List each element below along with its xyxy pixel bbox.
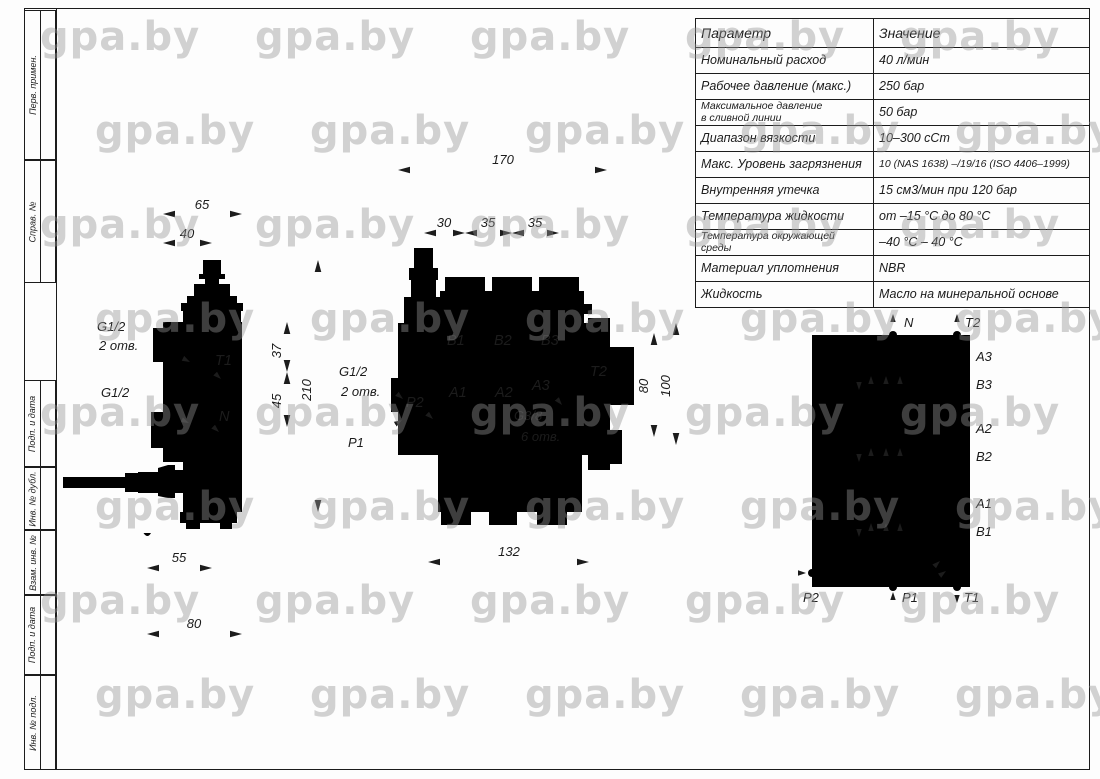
port-label-a3: A3 [531, 378, 550, 394]
sch-port-t2: T2 [965, 315, 981, 330]
param-value: 10 (NAS 1638) –/19/16 (ISO 4406–1999) [879, 159, 1084, 170]
stamp-podp-data-2: Подп. и дата [24, 595, 56, 675]
param-name-line2: среды [701, 243, 868, 254]
thread-qty-label: 2 отв. [98, 338, 138, 353]
dim-40: 40 [180, 226, 195, 241]
port-label-a1: A1 [448, 385, 467, 401]
front-view: 170 30 35 35 80 100 132 G1/2 2 отв. P1 [336, 152, 682, 568]
sch-port-n: N [904, 315, 914, 330]
table-row: Максимальное давлениев сливной линии 50 … [696, 99, 1089, 125]
stamp-sprav-no: Справ. № [24, 160, 56, 283]
table-row: Жидкость Масло на минеральной основе [696, 281, 1089, 307]
stamp-inv-dubl: Инв. № дубл. [24, 467, 56, 530]
dim-30: 30 [437, 215, 452, 230]
stamp-podp-data-1: Подп. и дата [24, 380, 56, 467]
param-name: Материал уплотнения [701, 262, 868, 275]
port-label-n: N [219, 409, 230, 425]
port-label-p1: P1 [348, 435, 364, 450]
param-name: Рабочее давление (макс.) [701, 80, 868, 93]
dim-80-front: 80 [636, 378, 651, 393]
dim-132: 132 [498, 544, 520, 559]
sch-port-a1: A1 [975, 496, 992, 511]
sch-port-b3: B3 [976, 377, 993, 392]
table-row: Температура окружающейсреды –40 °С – 40 … [696, 229, 1089, 255]
param-value: 15 см3/мин при 120 бар [879, 184, 1084, 197]
thread-qty6-label: 6 отв. [521, 429, 560, 444]
thread-label-g38: G3/8 [514, 408, 543, 423]
sch-port-p1: P1 [902, 590, 918, 605]
side-view: 65 40 37 45 210 55 80 G1/2 2 отв. [63, 197, 324, 640]
sch-port-t1: T1 [964, 590, 979, 605]
dim-37: 37 [269, 343, 284, 358]
param-name: Максимальное давление [701, 101, 868, 112]
param-value: –40 °С – 40 °С [879, 236, 1084, 249]
param-value: 50 бар [879, 106, 1084, 119]
param-name: Внутренняя утечка [701, 184, 868, 197]
port-label-t1: T1 [215, 353, 232, 369]
thread-qty2-label: 2 отв. [340, 384, 380, 399]
port-label-b1: B1 [447, 333, 465, 349]
drawing-sheet: Перв. примен. Справ. № Подп. и дата Инв.… [0, 0, 1100, 779]
stamp-inv-podl: Инв. № подл. [24, 675, 56, 770]
table-header-row: Параметр Значение [696, 19, 1089, 47]
param-value: Масло на минеральной основе [879, 288, 1084, 301]
stamp-label: Взам. инв. № [28, 535, 38, 591]
sch-port-b1: B1 [976, 524, 992, 539]
stamp-label: Подп. и дата [28, 607, 38, 663]
stamp-label: Справ. № [28, 201, 38, 242]
param-value: NBR [879, 262, 1084, 275]
thread-label-g12-top: G1/2 [97, 319, 126, 334]
param-name: Макс. Уровень загрязнения [701, 158, 868, 171]
dim-45: 45 [269, 393, 284, 408]
port-label-t2: T2 [590, 364, 607, 380]
stamp-label: Инв. № дубл. [28, 471, 38, 526]
stamp-label: Подп. и дата [28, 395, 38, 451]
stamp-vzam-inv: Взам. инв. № [24, 530, 56, 595]
hydraulic-schematic: N T2 A3 B3 A2 B2 A1 B1 P2 P1 T1 [790, 314, 993, 605]
table-row: Температура жидкости от –15 °С до 80 °С [696, 203, 1089, 229]
sch-port-a3: A3 [975, 349, 993, 364]
param-name: Диапазон вязкости [701, 132, 868, 145]
stamp-perv-primen: Перв. примен. [24, 10, 56, 160]
dim-65: 65 [195, 197, 210, 212]
thread-label-g12: G1/2 [339, 364, 368, 379]
param-name: Температура окружающей [701, 231, 868, 242]
stamp-label: Инв. № подл. [28, 695, 38, 751]
table-row: Рабочее давление (макс.) 250 бар [696, 73, 1089, 99]
port-label-b2: B2 [494, 333, 512, 349]
table-row: Внутренняя утечка 15 см3/мин при 120 бар [696, 177, 1089, 203]
port-label-p2: P2 [406, 395, 424, 411]
param-name-line2: в сливной линии [701, 113, 868, 124]
stamp-label: Перв. примен. [28, 55, 38, 115]
param-value: 250 бар [879, 80, 1084, 93]
sch-port-p2: P2 [803, 590, 820, 605]
parameters-table: Параметр Значение Номинальный расход 40 … [695, 18, 1090, 308]
param-value: от –15 °С до 80 °С [879, 210, 1084, 223]
col-param-header: Параметр [701, 26, 868, 41]
table-row: Материал уплотнения NBR [696, 255, 1089, 281]
table-row: Номинальный расход 40 л/мин [696, 47, 1089, 73]
param-name: Жидкость [701, 288, 868, 301]
param-name: Номинальный расход [701, 54, 868, 67]
dim-170: 170 [492, 152, 514, 167]
dim-35a: 35 [481, 215, 496, 230]
dim-35b: 35 [528, 215, 543, 230]
dim-80: 80 [187, 616, 202, 631]
table-row: Макс. Уровень загрязнения 10 (NAS 1638) … [696, 151, 1089, 177]
col-value-header: Значение [879, 26, 1084, 41]
dim-55: 55 [172, 550, 187, 565]
port-label-a2: A2 [494, 385, 513, 401]
dim-100: 100 [658, 374, 673, 396]
sch-port-b2: B2 [976, 449, 993, 464]
thread-label-g12-bottom: G1/2 [101, 385, 130, 400]
table-row: Диапазон вязкости 10–300 сСт [696, 125, 1089, 151]
param-value: 40 л/мин [879, 54, 1084, 67]
dim-210: 210 [299, 378, 314, 401]
sch-port-a2: A2 [975, 421, 993, 436]
param-name: Температура жидкости [701, 210, 868, 223]
port-label-b3: B3 [541, 333, 559, 349]
param-value: 10–300 сСт [879, 132, 1084, 145]
